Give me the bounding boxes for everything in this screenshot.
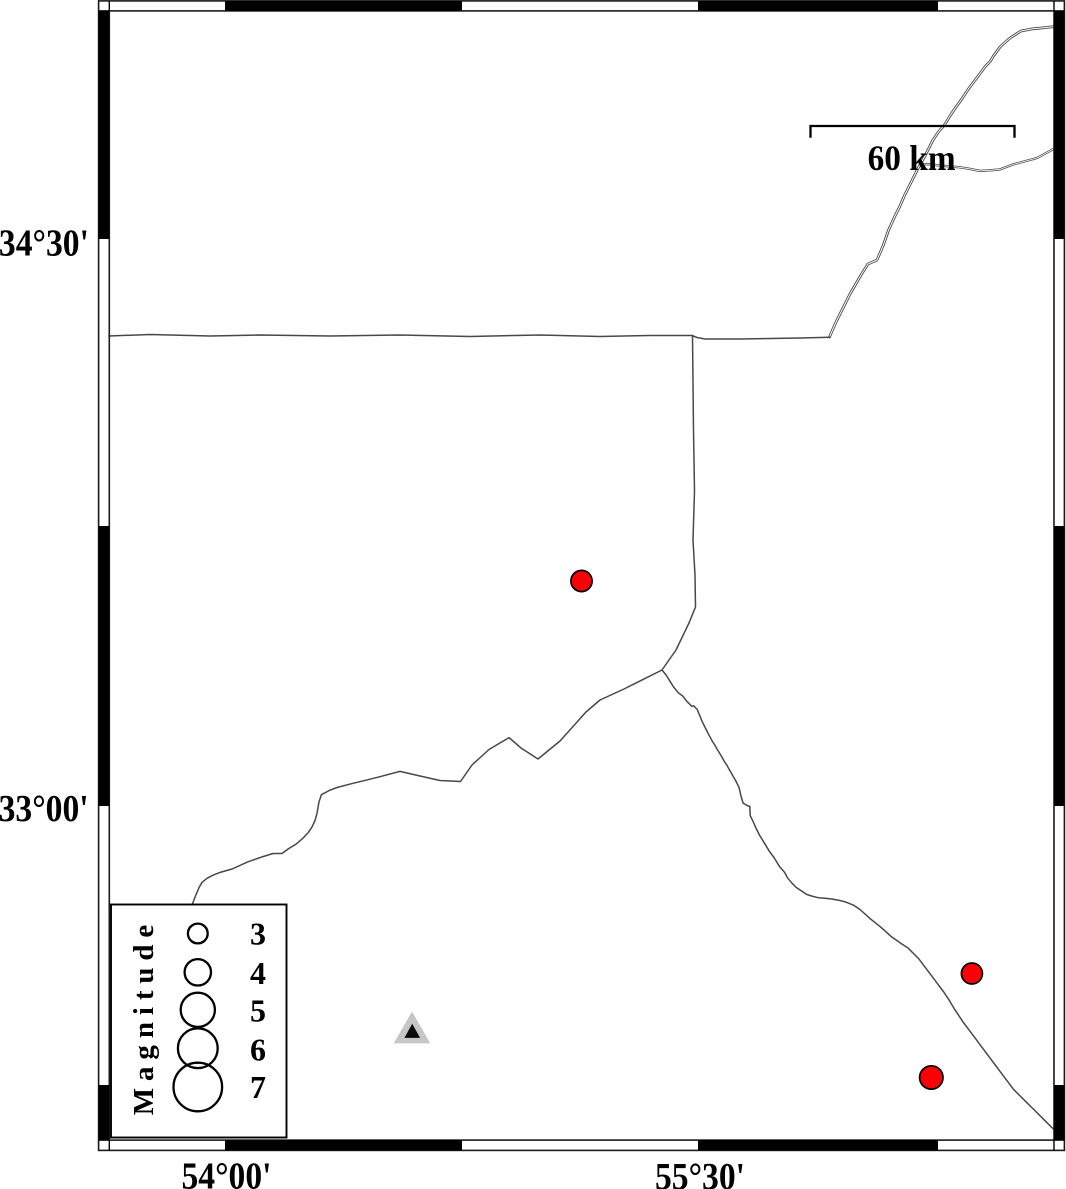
svg-text:Magnitude: Magnitude: [128, 918, 160, 1115]
svg-text:34°30': 34°30': [0, 222, 89, 264]
svg-text:7: 7: [250, 1069, 266, 1105]
svg-text:33°00': 33°00': [0, 788, 89, 830]
svg-text:55°30': 55°30': [655, 1156, 745, 1189]
svg-text:4: 4: [250, 955, 266, 991]
svg-text:54°00': 54°00': [182, 1156, 272, 1189]
svg-text:3: 3: [250, 916, 266, 952]
svg-text:60 km: 60 km: [868, 138, 956, 178]
svg-text:6: 6: [250, 1032, 266, 1068]
svg-text:5: 5: [250, 993, 266, 1029]
